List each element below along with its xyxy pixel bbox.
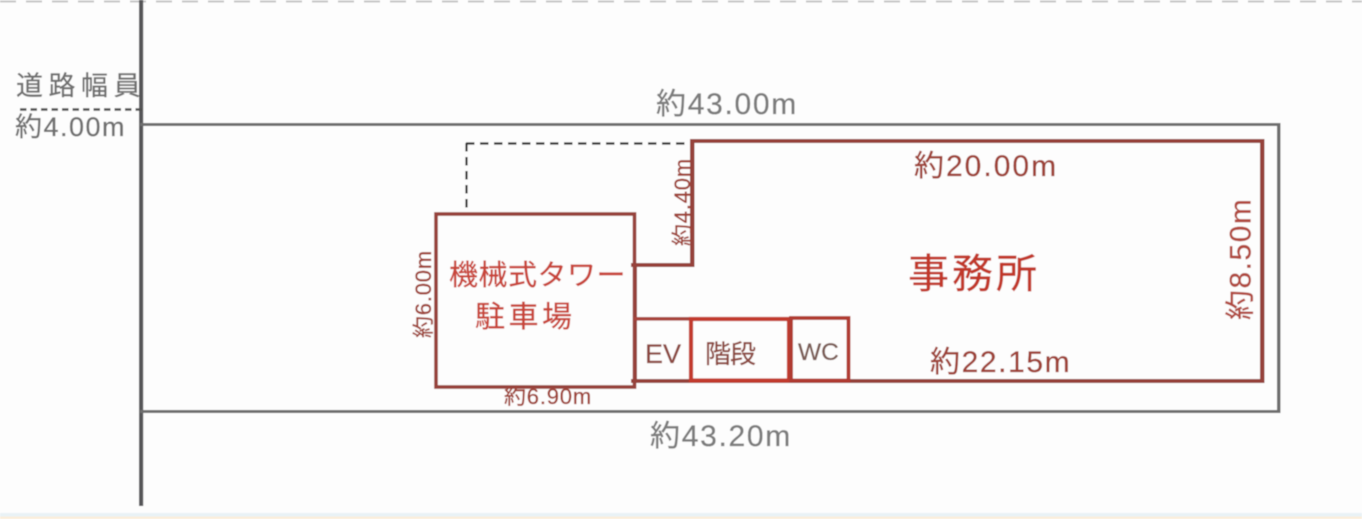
svg-text:6.90m: 6.90m <box>527 384 592 409</box>
svg-text:4.00m: 4.00m <box>44 112 127 142</box>
svg-text:43.20m: 43.20m <box>682 420 792 453</box>
svg-text:EV: EV <box>645 339 681 369</box>
svg-text:6.00m: 6.00m <box>411 250 436 315</box>
svg-text:WC: WC <box>798 339 839 366</box>
svg-text:43.00m: 43.00m <box>688 88 798 121</box>
svg-text:20.00m: 20.00m <box>946 150 1058 183</box>
svg-text:22.15m: 22.15m <box>962 346 1072 379</box>
svg-text:8.50m: 8.50m <box>1225 198 1258 289</box>
svg-text:4.40m: 4.40m <box>670 158 695 223</box>
